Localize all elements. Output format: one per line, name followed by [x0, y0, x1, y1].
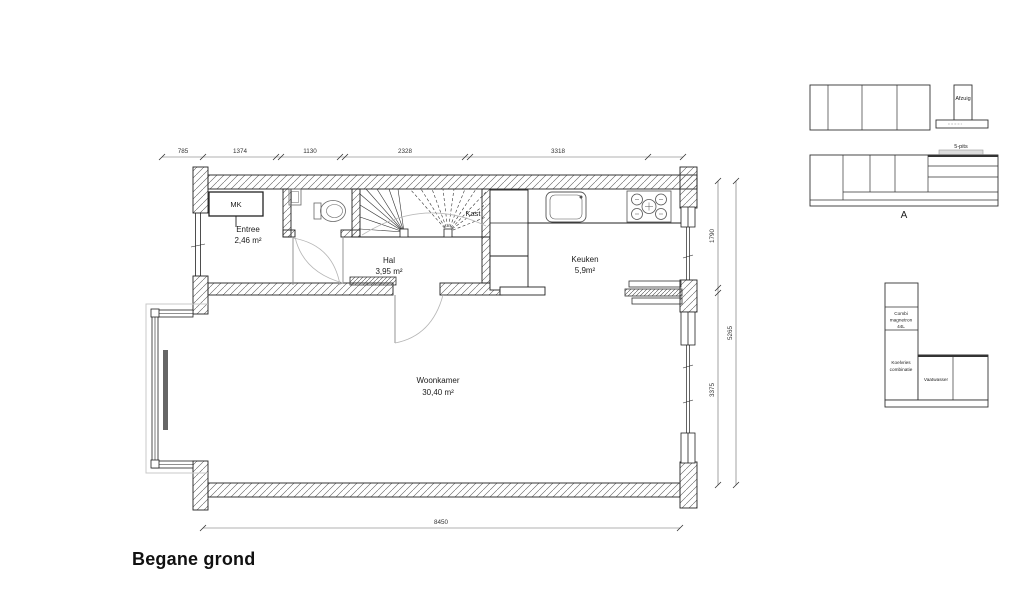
base-cabinets	[810, 155, 998, 206]
tall-cabinet	[490, 190, 528, 290]
woonkamer-label: Woonkamer	[417, 376, 460, 385]
tall-appliance-cabinet	[885, 283, 918, 400]
stairs-right-wall	[482, 189, 490, 283]
keuken-radiator-bar	[625, 289, 682, 296]
front-door	[191, 213, 205, 276]
stairs-newel-post	[400, 229, 408, 237]
entree-hal-door-swing	[293, 238, 340, 285]
top-wall	[208, 175, 697, 189]
woonkamer-area: 30,40 m²	[422, 388, 454, 397]
hal-label: Hal	[383, 256, 395, 265]
countertop	[918, 355, 988, 358]
dim-top-2: 1374	[233, 148, 248, 155]
entree-label: Entree	[236, 225, 260, 234]
right-wall-top-post	[680, 167, 697, 208]
toilet-cistern	[314, 203, 321, 219]
keuken-radiator-bar	[629, 281, 681, 287]
kitchen-sink	[546, 192, 586, 222]
koelvries-line1: Koelvries	[891, 360, 911, 365]
woonkamer-door-swing	[395, 295, 443, 343]
stairs-newel-post	[444, 229, 452, 237]
left-wall-top-post	[193, 167, 208, 213]
toilet-room	[289, 189, 346, 222]
meter-cupboard	[209, 192, 263, 227]
hal-area: 3,95 m²	[375, 267, 402, 276]
floorplan-drawing: MK Entree 2,46 m² Hal 3,95 m² Kast Keuke…	[0, 0, 1030, 610]
toilet-bowl	[321, 201, 346, 222]
cooktop	[627, 191, 671, 222]
dim-top-1: 785	[178, 148, 189, 155]
stairs-lower-treads	[360, 189, 404, 232]
dim-top-5: 3318	[551, 148, 566, 155]
stairs-left-wall	[352, 189, 360, 237]
right-wall-bottom-post	[680, 462, 697, 508]
plinth	[885, 400, 988, 407]
koelvries-line2: combinatie	[890, 367, 913, 372]
kitchen-elevation-a	[810, 85, 998, 206]
countertop	[928, 155, 998, 158]
kitchen-elevation-b	[885, 283, 988, 407]
toilet-wall-left-seg	[283, 230, 295, 237]
combi-line3: 44L	[897, 324, 905, 329]
section-a-label: A	[901, 210, 908, 221]
right-windows	[681, 207, 695, 463]
cooktop-side	[939, 150, 983, 155]
left-wall-bottom-post	[193, 461, 208, 510]
dim-right-2: 3375	[709, 383, 716, 398]
left-wall-mid-post	[193, 276, 208, 314]
dim-right-1: 1790	[709, 229, 716, 244]
dim-right-total: 5265	[727, 326, 734, 341]
hal-radiator	[350, 277, 396, 285]
keuken-area: 5,9m²	[575, 266, 596, 275]
dim-top-4: 2328	[398, 148, 413, 155]
bay-corner	[151, 460, 159, 468]
entree-area: 2,46 m²	[234, 236, 261, 245]
walls	[193, 167, 697, 510]
bay-radiator	[163, 350, 168, 430]
combi-line1: Combi	[894, 311, 908, 316]
kast-label: Kast	[465, 209, 481, 218]
dim-top-3: 1130	[303, 148, 317, 155]
hood-chimney	[954, 85, 972, 120]
bay-corner	[151, 309, 159, 317]
toilet-door-swing	[295, 237, 343, 283]
keuken-radiator-bar	[632, 298, 682, 304]
counter-return	[500, 287, 545, 295]
drawing-title: Begane grond	[132, 549, 255, 570]
keuken-label: Keuken	[571, 255, 598, 264]
cooktop-label: 5-pits	[954, 144, 968, 150]
mk-label: MK	[230, 200, 241, 209]
floorplan-sheet: MK Entree 2,46 m² Hal 3,95 m² Kast Keuke…	[0, 0, 1030, 610]
bottom-wall	[208, 483, 680, 497]
faucet	[580, 196, 583, 199]
combi-line2: magnetron	[890, 318, 913, 323]
vaatwasser-label: Vaatwasser	[924, 377, 949, 382]
right-wall-pier	[680, 280, 697, 312]
bay-window	[146, 304, 208, 473]
dim-bottom: 8450	[434, 519, 449, 526]
kitchen	[490, 190, 681, 295]
hood-label: Afzuig	[955, 96, 970, 102]
